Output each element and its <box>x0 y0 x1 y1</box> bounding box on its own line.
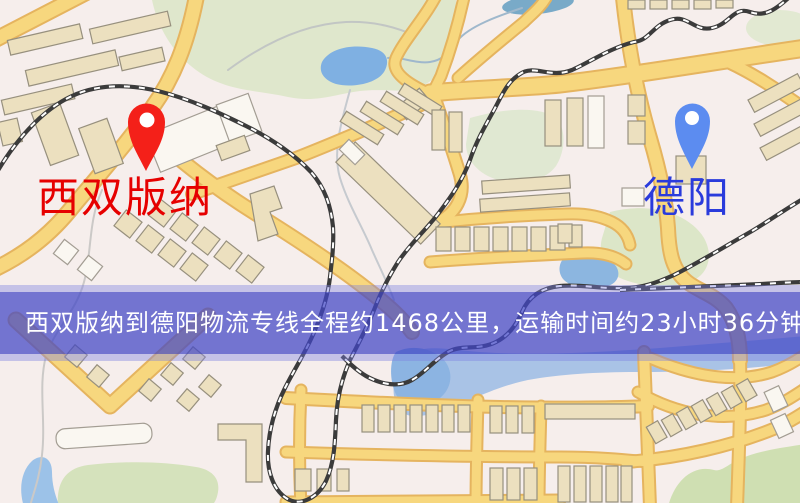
map-view[interactable]: 西双版纳 德阳 西双版纳到德阳物流专线全程约1468公里，运输时间约23小时36… <box>0 0 800 503</box>
destination-pin-hole <box>685 111 699 125</box>
route-info-text: 西双版纳到德阳物流专线全程约1468公里，运输时间约23小时36分钟. <box>0 292 800 354</box>
route-info-banner: 西双版纳到德阳物流专线全程约1468公里，运输时间约23小时36分钟. <box>0 285 800 361</box>
origin-pin-hole <box>140 113 155 128</box>
map-canvas[interactable] <box>0 0 800 503</box>
